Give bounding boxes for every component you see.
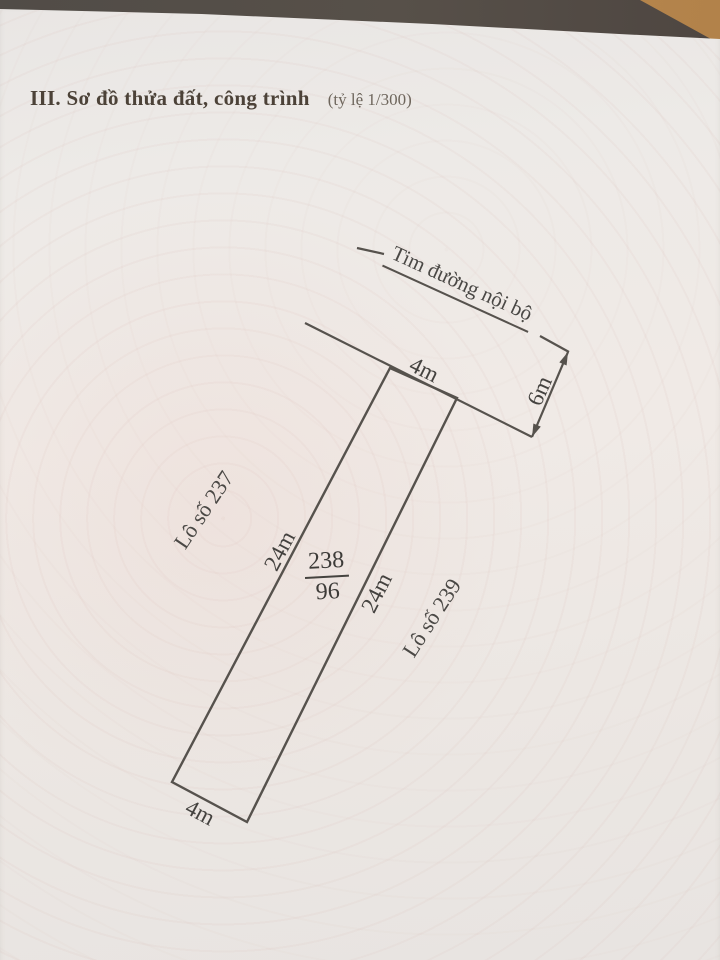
- parcel-area: 96: [305, 577, 350, 606]
- centerline-tick: [540, 336, 569, 352]
- centerline-dash: [357, 248, 384, 254]
- document-photo: III. Sơ đồ thửa đất, công trình (tỷ lệ 1…: [0, 0, 720, 960]
- arrowhead-down-icon: [532, 424, 541, 438]
- parcel-number-area-fraction: 238 96: [304, 548, 351, 607]
- arrowhead-up-icon: [559, 352, 568, 366]
- parcel-diagram: [0, 0, 720, 960]
- parcel-number: 238: [304, 548, 349, 579]
